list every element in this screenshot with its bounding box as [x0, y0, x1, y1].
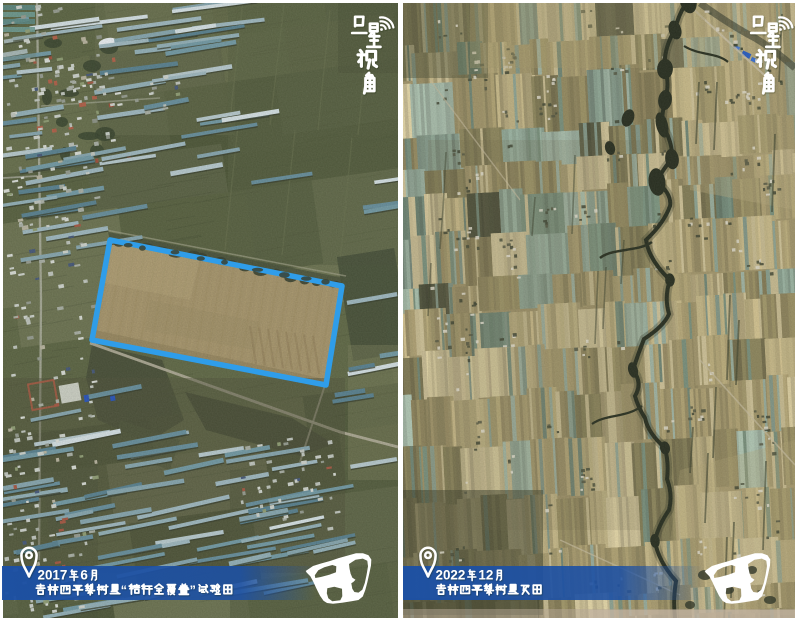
svg-text:”: ”	[190, 583, 196, 597]
svg-text:12: 12	[478, 568, 493, 583]
svg-text:2017: 2017	[38, 568, 68, 583]
svg-text:2022: 2022	[436, 568, 466, 583]
svg-text:6: 6	[80, 568, 87, 583]
svg-text:“: “	[121, 583, 127, 597]
